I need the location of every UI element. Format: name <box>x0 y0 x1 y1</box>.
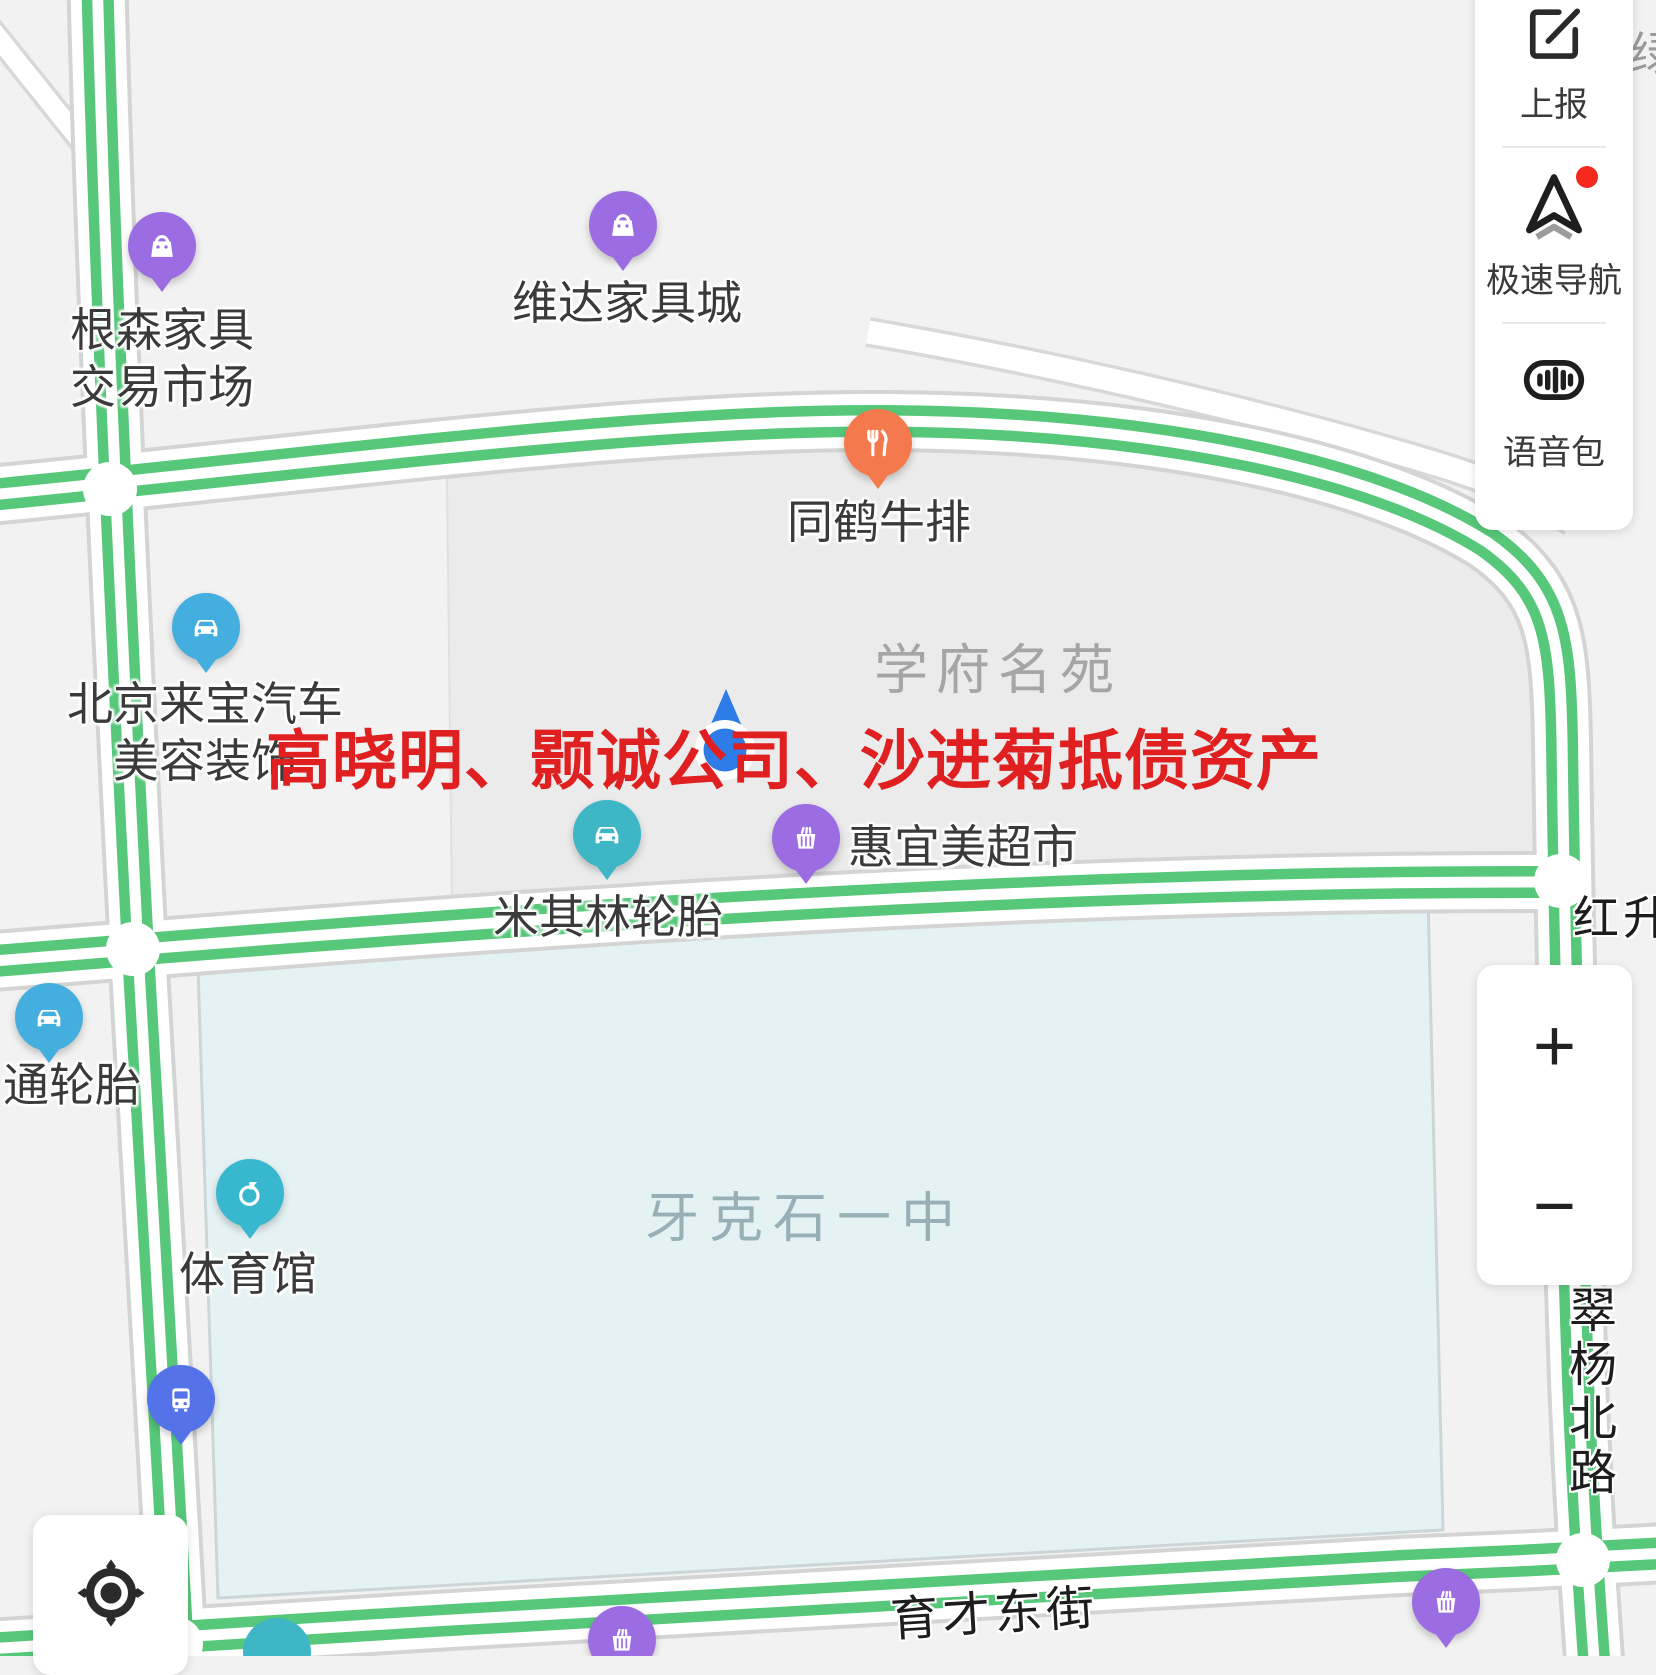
fast-navigation-label: 极速导航 <box>1486 253 1622 302</box>
voice-pack-button[interactable]: 语音包 <box>1503 344 1605 474</box>
voice-pack-label: 语音包 <box>1503 425 1605 474</box>
marker-tail <box>612 256 634 271</box>
marker-tail <box>867 474 889 489</box>
notification-dot <box>1576 166 1598 188</box>
sport-icon <box>216 1159 284 1227</box>
marker-tail <box>795 869 817 884</box>
map-canvas[interactable]: 高晓明、颢诚公司、沙进菊抵债资产 绿 学府名苑牙克石一中红升翠杨北路育才东街根森… <box>0 0 1656 1656</box>
marker-tail <box>195 658 217 673</box>
report-label: 上报 <box>1520 77 1588 126</box>
poi-marker[interactable] <box>216 1159 284 1239</box>
bag-icon <box>128 212 196 280</box>
basket-icon <box>772 804 840 872</box>
report-button[interactable]: 上报 <box>1520 0 1588 126</box>
edit-icon <box>1520 0 1588 73</box>
poi-marker[interactable] <box>147 1365 215 1445</box>
poi-label: 通轮胎 <box>0 1057 372 1114</box>
poi-label: 体育馆 <box>0 1246 548 1303</box>
basket-icon <box>588 1606 656 1656</box>
poi-marker[interactable] <box>772 804 840 884</box>
restaurant-icon <box>844 409 912 477</box>
marker-tail <box>596 865 618 880</box>
car-icon <box>172 593 240 661</box>
road-label: 翠杨北路 <box>1552 1285 1622 1501</box>
car-icon <box>573 800 641 868</box>
panel-divider <box>1502 146 1606 148</box>
marker-tail <box>38 1048 60 1063</box>
poi-label: 米其林轮胎 <box>308 889 908 946</box>
voice-icon <box>1518 344 1590 421</box>
road-label: 育才东街 <box>888 1568 1100 1651</box>
poi-label: 维达家具城 <box>327 275 927 332</box>
poi-marker[interactable] <box>573 800 641 880</box>
car-icon <box>15 983 83 1051</box>
area-label: 学府名苑 <box>874 626 1122 705</box>
navigation-icon <box>1516 168 1592 249</box>
side-tool-panel: 上报 极速导航 语音包 <box>1475 0 1633 530</box>
watermark-text: 高晓明、颢诚公司、沙进菊抵债资产 <box>266 708 1322 802</box>
panel-divider <box>1502 322 1606 324</box>
poi-marker[interactable] <box>15 983 83 1063</box>
poi-marker[interactable] <box>128 212 196 292</box>
basket-icon <box>1412 1568 1480 1636</box>
poi-label: 同鹤牛排 <box>579 494 1179 551</box>
poi-marker[interactable] <box>588 1606 656 1656</box>
marker-tail <box>239 1224 261 1239</box>
poi-marker[interactable] <box>589 191 657 271</box>
fast-navigation-button[interactable]: 极速导航 <box>1486 168 1622 302</box>
marker-tail <box>151 277 173 292</box>
poi-marker[interactable] <box>172 593 240 673</box>
road-label: 红升 <box>1573 882 1656 948</box>
poi-marker[interactable] <box>844 409 912 489</box>
crosshair-icon <box>69 1551 153 1640</box>
marker-tail <box>1435 1633 1457 1648</box>
marker-tail <box>170 1430 192 1445</box>
bag-icon <box>589 191 657 259</box>
zoom-in-button[interactable]: + <box>1477 965 1632 1125</box>
bus-icon <box>147 1365 215 1433</box>
zoom-control: + − <box>1477 965 1632 1285</box>
poi-label: 惠宜美超市 <box>848 819 1078 876</box>
poi-marker[interactable] <box>1412 1568 1480 1648</box>
locate-me-button[interactable] <box>33 1515 188 1675</box>
zoom-out-button[interactable]: − <box>1477 1125 1632 1285</box>
clipped-map-label: 绿 <box>1630 18 1656 74</box>
area-label: 牙克石一中 <box>645 1174 965 1253</box>
